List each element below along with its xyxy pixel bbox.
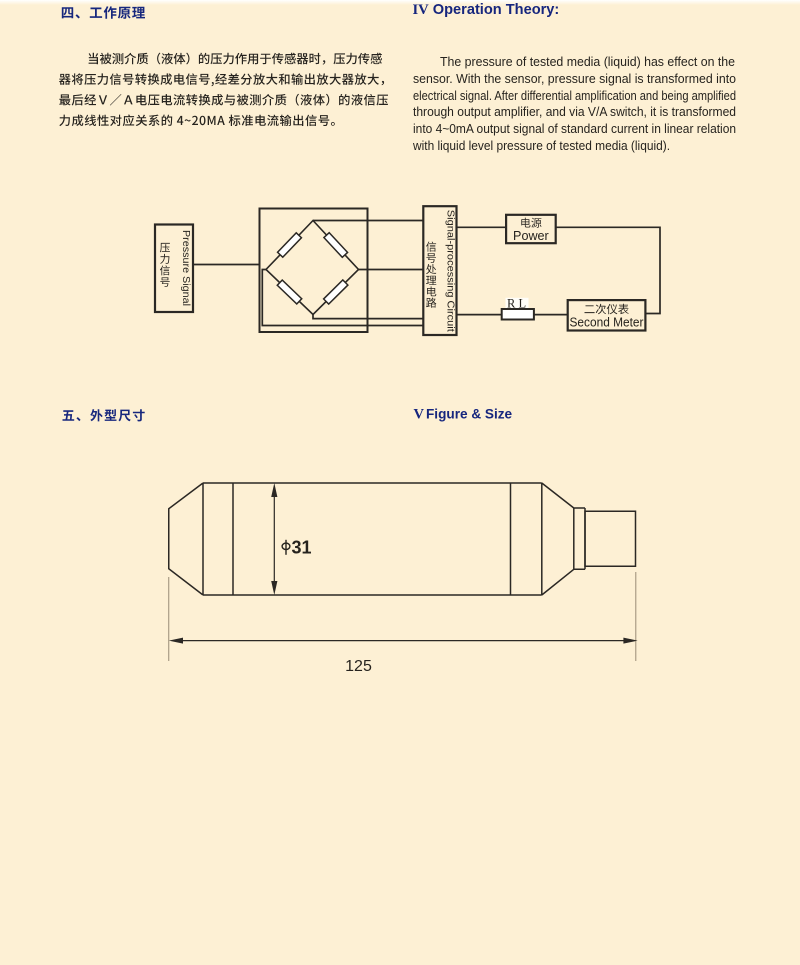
svg-text:R L: R L <box>507 297 526 311</box>
svg-text:V: V <box>414 407 425 423</box>
svg-text:Figure & Size: Figure & Size <box>426 407 513 422</box>
svg-text:Signal-processing Circuit: Signal-processing Circuit <box>445 210 457 332</box>
svg-text:31: 31 <box>292 538 312 558</box>
svg-text:Power: Power <box>513 229 549 243</box>
svg-text:125: 125 <box>345 658 372 675</box>
svg-text:Pressure Signal: Pressure Signal <box>180 230 192 306</box>
svg-text:Second Meter: Second Meter <box>570 315 645 330</box>
